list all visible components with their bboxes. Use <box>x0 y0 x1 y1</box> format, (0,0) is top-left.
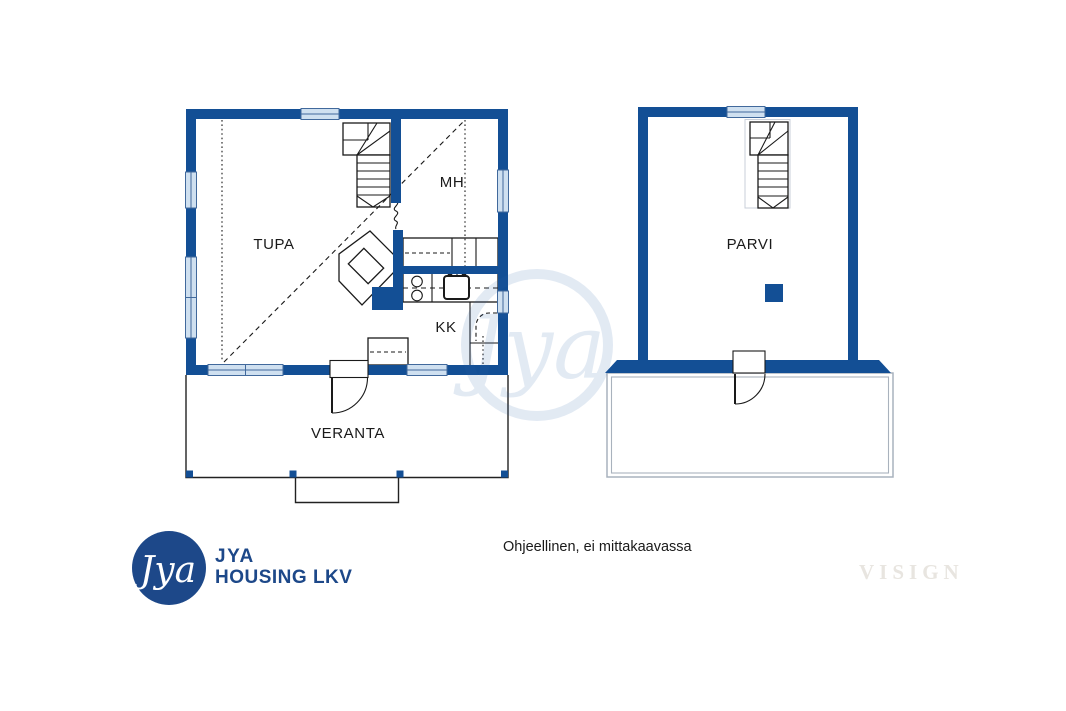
window <box>186 172 197 208</box>
logo-name: JYA <box>215 546 255 567</box>
room-label-veranta: VERANTA <box>311 425 385 442</box>
wall-right <box>848 107 858 360</box>
upper-staircase <box>745 120 790 209</box>
balcony-outline <box>607 373 893 477</box>
window <box>727 107 765 118</box>
window <box>407 365 447 376</box>
window <box>186 257 197 338</box>
window <box>498 170 509 212</box>
mh-kk-divider-wall <box>393 266 498 274</box>
floor-plan-page: TUPA MH KK VERANTA <box>0 0 1066 711</box>
room-label-mh: MH <box>440 174 465 191</box>
upper-floor-plan: PARVI <box>605 107 893 478</box>
door-swing-arc <box>735 374 765 404</box>
room-label-kk: KK <box>435 319 456 336</box>
bed <box>403 238 498 268</box>
veranda-posts <box>186 471 508 478</box>
stair-wall <box>391 119 401 203</box>
fireplace-mass <box>372 287 393 310</box>
logo-monogram: Jya <box>133 550 196 591</box>
wall-break-symbol <box>394 201 397 229</box>
ground-floor-plan: TUPA MH KK VERANTA <box>186 109 509 503</box>
visign-watermark: VISIGN <box>859 560 964 584</box>
floor-plan-canvas: TUPA MH KK VERANTA <box>0 0 1066 711</box>
wall-top <box>186 109 508 119</box>
table <box>368 338 408 365</box>
logo-subtitle: HOUSING LKV <box>215 567 352 588</box>
jya-watermark: Jya <box>453 274 608 416</box>
staircase <box>343 123 390 207</box>
door-swing-arc <box>332 378 368 414</box>
window <box>208 365 283 376</box>
watermark-monogram: Jya <box>453 296 605 399</box>
room-label-parvi: PARVI <box>727 236 774 253</box>
veranda-step <box>296 478 399 503</box>
window <box>301 109 339 120</box>
disclaimer-text: Ohjeellinen, ei mittakaavassa <box>503 539 693 555</box>
entrance-door <box>330 361 368 414</box>
jya-logo: Jya JYA HOUSING LKV <box>132 531 352 605</box>
room-label-tupa: TUPA <box>253 236 294 253</box>
wall-left <box>638 107 648 360</box>
chimney <box>765 284 783 302</box>
